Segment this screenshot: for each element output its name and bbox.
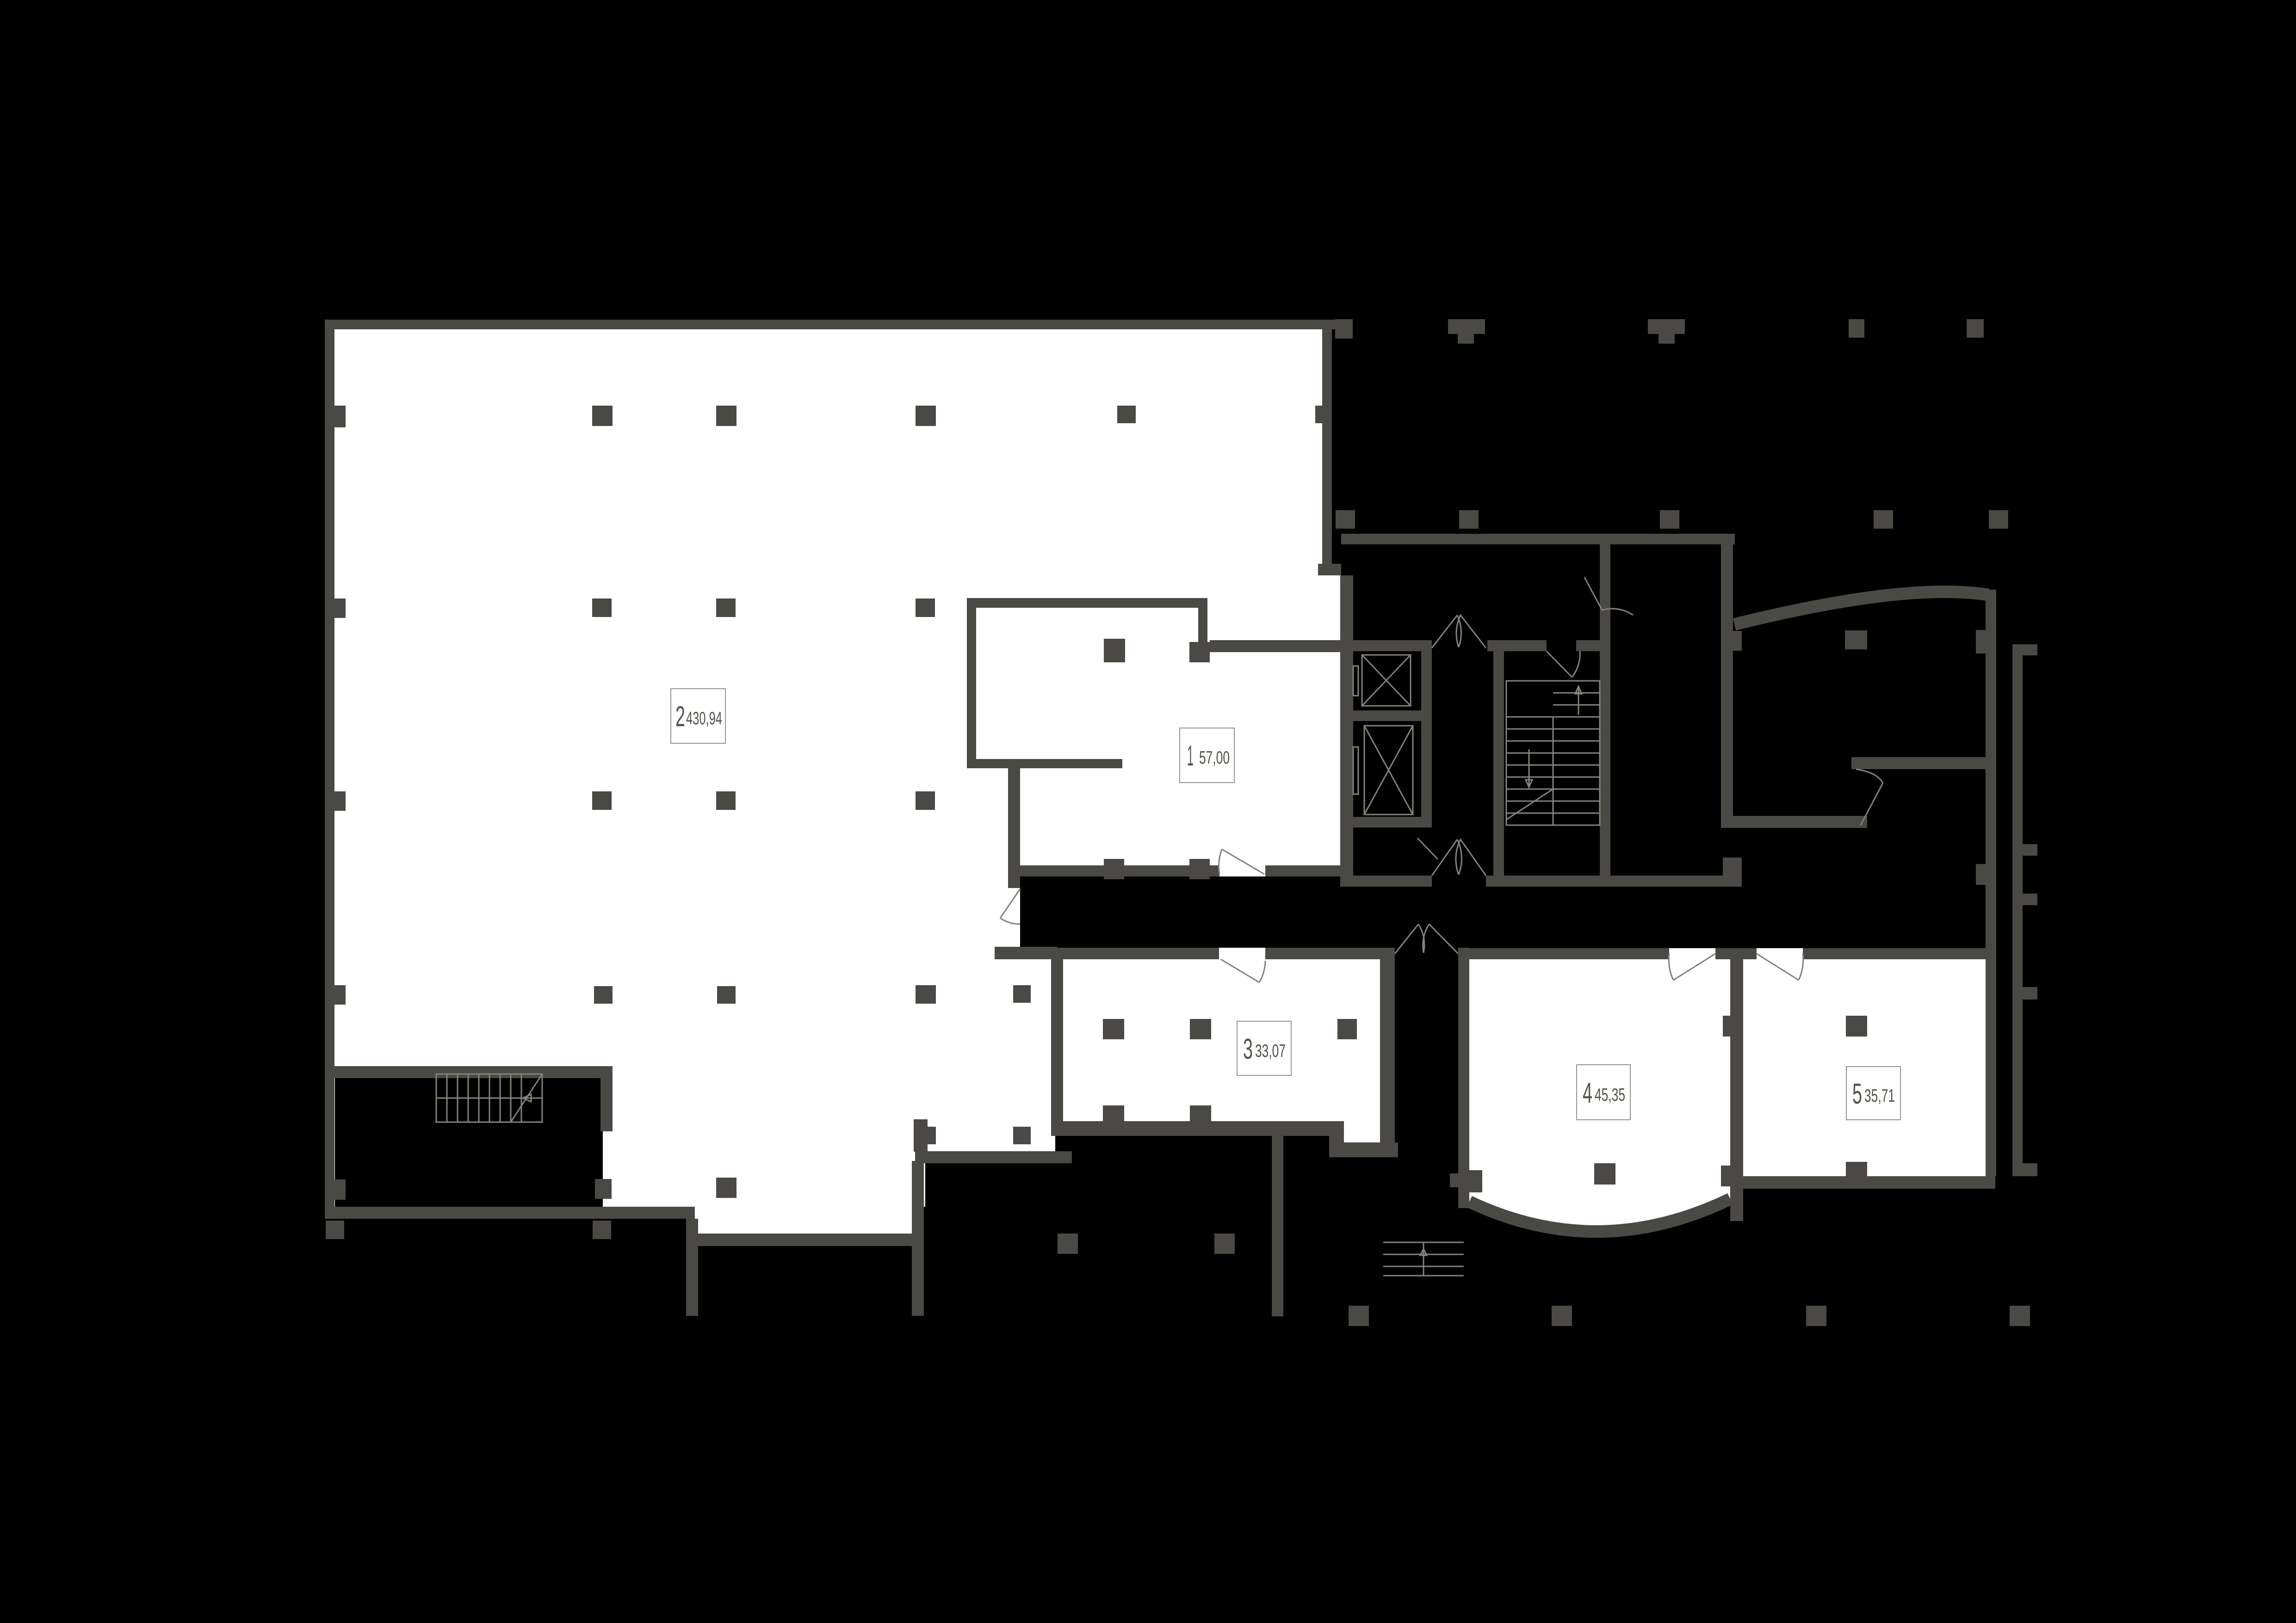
svg-text:45,35: 45,35 (1595, 1085, 1625, 1105)
svg-text:33,07: 33,07 (1255, 1041, 1286, 1061)
svg-text:430,94: 430,94 (686, 709, 722, 728)
svg-text:1: 1 (1187, 740, 1194, 772)
svg-text:57,00: 57,00 (1199, 748, 1230, 768)
svg-text:35,71: 35,71 (1864, 1086, 1895, 1106)
svg-text:5: 5 (1852, 1078, 1862, 1110)
svg-text:2: 2 (675, 701, 685, 733)
svg-text:3: 3 (1243, 1033, 1253, 1065)
svg-text:4: 4 (1583, 1077, 1592, 1109)
